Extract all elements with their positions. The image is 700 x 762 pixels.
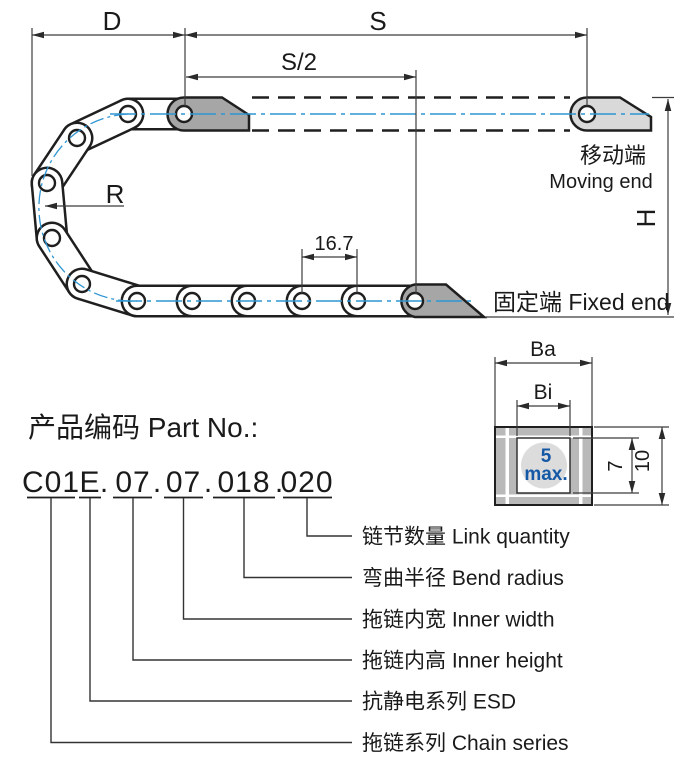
cross-section-view: 5 max. Ba Bi 7 10 bbox=[495, 338, 669, 505]
key-label-bend-radius: 弯曲半径 Bend radius bbox=[362, 567, 564, 590]
key-label-inner-height: 拖链内高 Inner height bbox=[362, 650, 563, 673]
dim-label-outer-height: 10 bbox=[632, 450, 654, 472]
part-segment-bend-radius: 018 bbox=[217, 466, 270, 499]
moving-end-label-en: Moving end bbox=[549, 171, 652, 193]
key-label-inner-width: 拖链内宽 Inner width bbox=[362, 609, 555, 632]
part-separator: . bbox=[153, 466, 162, 499]
key-label-link-quantity: 链节数量 Link quantity bbox=[362, 526, 570, 549]
drag-chain-datasheet-figure: D S S/2 R 16.7 H 移动端 Moving end 固定端 Fixe… bbox=[0, 0, 700, 762]
chain-links bbox=[47, 114, 415, 301]
key-label-chain-series: 拖链系列 Chain series bbox=[362, 732, 569, 755]
key-label-esd: 抗静电系列 ESD bbox=[362, 691, 516, 714]
dim-label-ba: Ba bbox=[530, 338, 556, 361]
part-segment-esd: E bbox=[79, 466, 100, 499]
moving-end-label-cn: 移动端 bbox=[580, 143, 646, 168]
dim-label-r: R bbox=[106, 179, 125, 209]
part-segment-link-quantity: 020 bbox=[280, 466, 333, 499]
part-segment-inner-height: 07 bbox=[115, 466, 150, 499]
part-separator: . bbox=[204, 466, 213, 499]
chain-side-view bbox=[39, 98, 651, 318]
part-separator: . bbox=[100, 466, 109, 499]
dim-label-bi: Bi bbox=[534, 381, 553, 404]
fixed-end-label: 固定端 Fixed end bbox=[493, 289, 669, 315]
part-number-key: 产品编码 Part No.: C01 . E 07 . 07 . 018 . 0… bbox=[22, 412, 570, 755]
dim-label-pitch: 16.7 bbox=[315, 233, 354, 255]
technical-drawing-svg: D S S/2 R 16.7 H 移动端 Moving end 固定端 Fixe… bbox=[0, 0, 700, 762]
dim-label-inner-height: 7 bbox=[605, 460, 627, 471]
dim-label-s: S bbox=[369, 6, 386, 36]
side-view-dimensions: D S S/2 R 16.7 H 移动端 Moving end 固定端 Fixe… bbox=[32, 6, 674, 317]
dim-label-s-half: S/2 bbox=[281, 49, 317, 76]
part-segment-inner-width: 07 bbox=[166, 466, 201, 499]
dim-label-h: H bbox=[631, 209, 661, 228]
part-no-heading: 产品编码 Part No.: bbox=[28, 412, 258, 443]
dim-label-d: D bbox=[103, 6, 122, 36]
part-segment-series: C01 bbox=[22, 466, 80, 499]
cable-note-unit: max. bbox=[524, 464, 567, 485]
